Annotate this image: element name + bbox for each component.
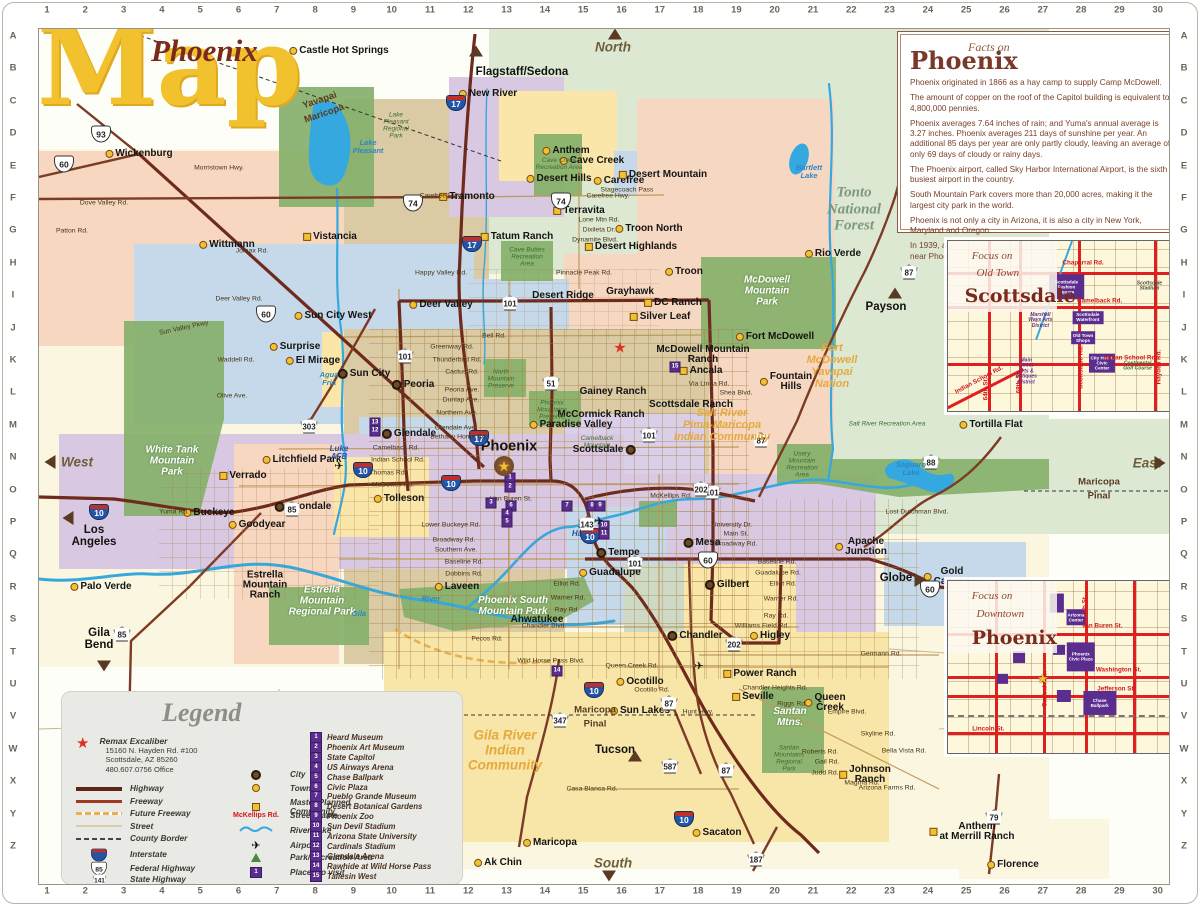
place-to-visit-marker: 9 xyxy=(595,501,606,512)
grid-col-label: 19 xyxy=(731,886,742,897)
city-label: Verrado xyxy=(219,471,266,481)
grid-col-label: 14 xyxy=(540,886,551,897)
grid-col-label: 13 xyxy=(501,5,512,16)
street-name-label: Thomas Rd. xyxy=(369,471,406,478)
town-dot-icon xyxy=(289,47,297,55)
city-label: Grayhawk xyxy=(606,287,654,297)
street-name-label: Chandler Blvd. xyxy=(522,624,567,631)
remax-name: Remax Excaliber xyxy=(99,736,197,746)
interstate-shield-icon: 17 xyxy=(446,95,466,111)
grid-row-label: K xyxy=(10,355,17,366)
city-label: Higley xyxy=(750,631,790,641)
grid-row-label: F xyxy=(10,193,16,204)
place-list-item: 15Taliesin West xyxy=(310,871,376,882)
grid-col-label: 3 xyxy=(121,886,126,897)
destination-arrow-icon xyxy=(63,511,74,525)
city-label: Goodyear xyxy=(229,520,286,530)
town-dot-icon xyxy=(579,569,587,577)
community-square-icon xyxy=(680,367,688,375)
legend-item-airport: ✈Airport xyxy=(230,839,317,852)
airport-icon: ✈ xyxy=(334,460,343,473)
street-name-label: Williams Field Rd. xyxy=(735,624,789,631)
street-name-label: Roberts Rd. xyxy=(802,750,838,757)
street-name-label: Hunt Hwy. xyxy=(683,710,714,717)
grid-row-label: R xyxy=(10,581,17,592)
inset-landmark-block xyxy=(1057,690,1071,702)
grid-col-label: 25 xyxy=(961,886,972,897)
street-name-label: Northern Ave. xyxy=(436,411,477,418)
inset-street-label: 64th St. xyxy=(982,378,989,401)
city-dot-icon xyxy=(338,369,348,379)
state-highway-shield-icon: 202 xyxy=(726,637,743,652)
area-label: Fort McDowell Yavapai Nation xyxy=(807,342,858,390)
grid-row-label: N xyxy=(10,452,17,463)
city-label: McCormick Ranch xyxy=(557,410,644,420)
street-name-label: McDowell Rd. xyxy=(372,483,414,490)
city-label: Surprise xyxy=(270,342,321,352)
place-to-visit-marker: 15 xyxy=(670,362,681,373)
grid-row-label: B xyxy=(10,63,17,74)
compass-label: North xyxy=(595,40,631,55)
grid-row-label: Z xyxy=(10,841,16,852)
city-label: Peoria xyxy=(392,380,435,390)
area-label: Lake Pleasant xyxy=(353,139,384,156)
street-name-label: Elliot Rd. xyxy=(769,582,796,589)
grid-row-label: W xyxy=(9,743,18,754)
town-dot-icon xyxy=(987,861,995,869)
street-name-label: Dunlap Ave. xyxy=(443,398,480,405)
grid-row-label: G xyxy=(9,225,16,236)
grid-col-label: 24 xyxy=(923,5,934,16)
grid-col-label: 12 xyxy=(463,886,474,897)
county-border-label: MaricopaPinal xyxy=(1078,476,1120,503)
city-label: Sun City xyxy=(338,369,391,379)
street-name-label: Chandler Heights Rd. xyxy=(743,686,808,693)
town-dot-icon xyxy=(199,241,207,249)
interstate-shield-icon: 10 xyxy=(584,682,604,698)
grid-col-label: 22 xyxy=(846,5,857,16)
grid-row-label: Q xyxy=(9,549,16,560)
grid-col-label: 6 xyxy=(236,886,241,897)
city-label: Glendale xyxy=(382,429,436,439)
facts-paragraph: The amount of copper on the roof of the … xyxy=(910,93,1170,114)
community-square-icon xyxy=(630,313,638,321)
town-dot-icon xyxy=(526,175,534,183)
phoenix-star-icon: ★ xyxy=(494,456,514,476)
city-label: Wickenburg xyxy=(105,149,172,159)
street-name-label: Baseline Rd. xyxy=(758,560,797,567)
city-dot-icon xyxy=(596,548,606,558)
city-dot-icon xyxy=(625,445,635,455)
area-label: Saguaro Lake xyxy=(896,461,926,478)
county-border-label: YavapaiMaricopa xyxy=(298,87,346,126)
grid-col-label: 17 xyxy=(655,886,666,897)
town-dot-icon xyxy=(736,333,744,341)
street-name-label: Dobbins Rd. xyxy=(445,572,482,579)
city-label: Paradise Valley xyxy=(530,420,613,430)
area-label: Bartlett Lake xyxy=(796,164,822,181)
street-name-label: Bethany Home Rd. xyxy=(430,435,487,442)
destination-arrow-icon xyxy=(97,661,111,672)
state-highway-shield-icon: 87 xyxy=(661,696,678,711)
grid-col-label: 9 xyxy=(351,5,356,16)
town-dot-icon xyxy=(70,583,78,591)
inset-street-label: Camelback Rd. xyxy=(1077,297,1122,304)
grid-col-label: 12 xyxy=(463,5,474,16)
town-dot-icon xyxy=(435,583,443,591)
county-swatch-icon xyxy=(76,838,122,840)
state-highway-shield-icon: 85 xyxy=(114,627,131,642)
grid-row-label: Z xyxy=(1181,841,1187,852)
city-label: Maricopa xyxy=(523,838,577,848)
town-dot-icon xyxy=(294,312,302,320)
destination-label: Gila Bend xyxy=(85,627,114,651)
street-name-label: Waddell Rd. xyxy=(218,358,255,365)
inset-landmark-block: Chase Ballpark xyxy=(1083,691,1116,715)
grid-col-label: 13 xyxy=(501,886,512,897)
area-label: Phoenix South Mountain Park xyxy=(478,595,548,617)
town-dot-icon xyxy=(374,495,382,503)
grid-col-label: 18 xyxy=(693,5,704,16)
inset-title: Phoenix xyxy=(972,629,1057,648)
grid-row-label: U xyxy=(10,679,17,690)
inset-script-line2: Downtown xyxy=(976,609,1024,620)
town-dot-icon xyxy=(616,678,624,686)
street-name-label: Skyline Rd. xyxy=(861,732,895,739)
compass-arrow-icon xyxy=(602,871,616,882)
inset-scottsdale-map: Focus on Old Town Scottsdale Chaparral R… xyxy=(948,241,1170,411)
street-name-label: Lone Mtn Rd. xyxy=(579,218,620,225)
city-label: Sun City West xyxy=(294,311,371,321)
legend-item-state: 141State Highway xyxy=(76,872,186,885)
area-label: North Mountain Preserve xyxy=(488,368,515,389)
city-label: Seville xyxy=(732,692,774,702)
town-dot-icon xyxy=(530,421,538,429)
grid-col-label: 29 xyxy=(1114,886,1125,897)
community-square-icon xyxy=(723,670,731,678)
facts-paragraph: Phoenix originated in 1866 as a hay camp… xyxy=(910,78,1170,88)
grid-row-label: S xyxy=(10,614,16,625)
city-label: Tatum Ranch xyxy=(481,232,554,242)
grid-row-label: B xyxy=(1181,63,1188,74)
city-label: Gainey Ranch xyxy=(580,387,647,397)
place-to-visit-marker: 14 xyxy=(552,666,563,677)
street-name-label: Patton Rd. xyxy=(56,229,88,236)
city-label: Chandler xyxy=(667,631,722,641)
place-to-visit-marker: 3 xyxy=(486,498,497,509)
grid-row-label: T xyxy=(10,646,16,657)
state-highway-shield-icon: 187 xyxy=(748,852,765,867)
map-sheet-frame: 1122334455667788991010111112121313141415… xyxy=(2,2,1198,904)
city-dot-icon xyxy=(683,538,693,548)
state-highway-shield-icon: 87 xyxy=(901,265,918,280)
street-swatch-icon xyxy=(76,825,122,827)
facts-paragraph: Phoenix averages 7.64 inches of rain; an… xyxy=(910,119,1170,160)
grid-row-label: Y xyxy=(10,808,16,819)
inset-street-label: Chaparral Rd. xyxy=(1062,260,1103,267)
facts-paragraphs: Phoenix originated in 1866 as a hay camp… xyxy=(910,78,1170,262)
grid-row-label: M xyxy=(9,419,17,430)
state-swatch-icon: 141 xyxy=(76,872,122,885)
city-label: Fountain Hills xyxy=(760,372,812,392)
city-label: Gilbert xyxy=(705,580,749,590)
city-label: Troon North xyxy=(615,224,682,234)
grid-row-label: E xyxy=(10,160,16,171)
grid-col-label: 25 xyxy=(961,5,972,16)
street-name-label: Elliot Rd. xyxy=(553,582,580,589)
community-square-icon xyxy=(839,771,847,779)
grid-row-label: C xyxy=(1181,95,1188,106)
legend-item-freeway: Freeway xyxy=(76,797,163,806)
street-name-label: Peoria Ave. xyxy=(445,388,480,395)
inset-landmark-block: Phoenix Civic Plaza xyxy=(1067,642,1095,671)
street-name-label: Ray Rd. xyxy=(555,608,580,615)
grid-col-label: 23 xyxy=(884,886,895,897)
legend-title: Legend xyxy=(162,698,241,728)
grid-row-label: S xyxy=(1181,614,1187,625)
grid-row-label: C xyxy=(10,95,17,106)
state-highway-shield-icon: 87 xyxy=(718,763,735,778)
inset-script-line1: Focus on xyxy=(972,251,1013,262)
legend-remax-entry: ★ Remax Excaliber 15160 N. Hayden Rd. #1… xyxy=(76,736,198,774)
street-name-label: Lower Buckeye Rd. xyxy=(422,523,481,530)
state-highway-shield-icon: 347 xyxy=(552,713,569,728)
interstate-shield-icon: 10 xyxy=(674,811,694,827)
street-name-label: Indian School Rd. xyxy=(371,458,425,465)
grid-row-label: V xyxy=(10,711,16,722)
street-name-label: Baseline Rd. xyxy=(445,560,484,567)
grid-col-label: 20 xyxy=(769,5,780,16)
grid-row-label: M xyxy=(1180,419,1188,430)
city-label: Estrella Mountain Ranch xyxy=(243,571,287,602)
street-name-label: Thunderbird Rd. xyxy=(432,358,481,365)
community-square-icon xyxy=(619,171,627,179)
town-dot-icon xyxy=(805,250,813,258)
area-label: Salt River Recreation Area xyxy=(849,420,926,427)
destination-arrow-icon xyxy=(628,751,642,762)
grid-row-label: F xyxy=(1181,193,1187,204)
state-highway-shield-icon: 202 xyxy=(693,482,710,497)
airport-swatch-icon: ✈ xyxy=(230,839,282,852)
city-label: El Mirage xyxy=(286,356,340,366)
street-name-label: Casa Blanca Rd. xyxy=(566,787,617,794)
area-label: Agua Fria xyxy=(320,371,339,388)
highway-swatch-icon xyxy=(76,787,122,791)
state-highway-shield-icon: 101 xyxy=(641,428,658,443)
inset-script-line2: Old Town xyxy=(976,268,1019,279)
mpc-swatch-icon xyxy=(230,803,282,811)
street-name-label: Broadway Rd. xyxy=(433,538,476,545)
grid-row-label: J xyxy=(10,322,15,333)
area-label: Gila xyxy=(352,610,366,618)
grid-row-label: X xyxy=(1181,776,1187,787)
street-name-label: Deer Valley Rd. xyxy=(215,297,262,304)
grid-col-label: 2 xyxy=(83,5,88,16)
town-dot-icon xyxy=(594,177,602,185)
city-label: Castle Hot Springs xyxy=(289,46,388,56)
street-name-label: Ray Rd. xyxy=(764,614,789,621)
street-name-label: Glendale Ave. xyxy=(435,426,477,433)
city-label: Avondale xyxy=(275,502,332,512)
town-dot-icon xyxy=(959,421,967,429)
grid-row-label: Q xyxy=(1180,549,1187,560)
grid-row-label: J xyxy=(1181,322,1186,333)
inset-street-label: 7th St. xyxy=(1082,595,1089,614)
city-dot-icon xyxy=(275,502,285,512)
legend-item-highway: Highway xyxy=(76,784,164,793)
streetname-swatch-icon: McKellips Rd. xyxy=(230,812,282,819)
freeway-swatch-icon xyxy=(76,800,122,803)
state-highway-shield-icon: 587 xyxy=(662,759,679,774)
town-dot-icon xyxy=(229,521,237,529)
grid-col-label: 1 xyxy=(44,886,49,897)
grid-row-label: P xyxy=(1181,517,1187,528)
state-highway-shield-icon: 143 xyxy=(579,517,596,532)
street-name-label: Gail Rd. xyxy=(815,760,840,767)
grid-row-label: R xyxy=(1181,581,1188,592)
city-label: Troon xyxy=(665,267,703,277)
destination-label: Globe xyxy=(880,572,913,584)
community-square-icon xyxy=(732,693,740,701)
city-label: Fort McDowell xyxy=(736,332,814,342)
grid-col-label: 10 xyxy=(386,5,397,16)
grid-row-label: W xyxy=(1180,743,1189,754)
grid-row-label: A xyxy=(10,31,17,42)
grid-col-label: 27 xyxy=(1038,5,1049,16)
town-dot-icon xyxy=(760,378,768,386)
facts-on-phoenix-box: Facts on Phoenix Phoenix originated in 1… xyxy=(897,31,1170,233)
area-label: River xyxy=(422,595,441,603)
city-label: Phoenix xyxy=(481,440,537,455)
grid-col-label: 8 xyxy=(312,886,317,897)
street-name-label: Germann Rd. xyxy=(861,652,902,659)
street-name-label: Broadway Rd. xyxy=(715,542,758,549)
inset-street-label: Lincoln St. xyxy=(972,725,1004,732)
area-label: Usery Mountain Recreation Area xyxy=(786,451,817,480)
grid-col-label: 22 xyxy=(846,886,857,897)
interstate-shield-icon: 10 xyxy=(89,504,109,520)
city-label: Vistancia xyxy=(303,232,357,242)
grid-col-label: 5 xyxy=(198,5,203,16)
phoenix-map-sheet: { "title": {"script": "Phoenix", "main":… xyxy=(0,0,1200,906)
legend-item-street: Street xyxy=(76,822,153,831)
grid-col-label: 24 xyxy=(923,886,934,897)
grid-col-label: 26 xyxy=(999,886,1010,897)
city-label: Rio Verde xyxy=(805,249,861,259)
town-dot-icon xyxy=(542,147,550,155)
town-dot-icon xyxy=(615,225,623,233)
grid-col-label: 20 xyxy=(769,886,780,897)
us-highway-shield-icon: 60 xyxy=(54,156,74,173)
street-name-label: Dynamite Blvd. xyxy=(572,238,618,245)
street-name-label: Bella Vista Rd. xyxy=(882,749,926,756)
town-dot-icon xyxy=(270,343,278,351)
city-label: Desert Hills xyxy=(526,174,591,184)
grid-row-label: A xyxy=(1181,31,1188,42)
street-name-label: Dixileta Dr. xyxy=(583,228,616,235)
street-name-label: Camelback Rd. xyxy=(373,446,419,453)
city-label: Sacaton xyxy=(693,828,742,838)
city-label: Sun Lakes xyxy=(610,706,670,716)
grid-col-label: 30 xyxy=(1152,5,1163,16)
inset-street-label: Van Buren St. xyxy=(1082,622,1123,629)
town-dot-icon xyxy=(835,543,843,551)
grid-row-label: O xyxy=(9,484,16,495)
grid-col-label: 10 xyxy=(386,886,397,897)
city-label: Tortilla Flat xyxy=(959,420,1022,430)
city-label: Tolleson xyxy=(374,494,424,504)
inset-street-label: Hayden Rd. xyxy=(1155,349,1162,384)
grid-col-label: 30 xyxy=(1152,886,1163,897)
us-highway-shield-icon: 60 xyxy=(698,552,718,569)
grid-col-label: 21 xyxy=(808,5,819,16)
grid-col-label: 28 xyxy=(1076,886,1087,897)
area-label: Tonto National Forest xyxy=(827,184,881,234)
river-swatch-icon xyxy=(230,825,282,835)
remax-star-icon: ★ xyxy=(76,736,89,751)
airport-icon: ✈ xyxy=(594,515,603,528)
legend-item-county: County Border xyxy=(76,834,187,843)
grid-row-label: D xyxy=(10,128,17,139)
area-label: Santan Mountains Regional Park xyxy=(774,745,804,774)
street-name-label: Greenway Rd. xyxy=(430,345,473,352)
city-label: Desert Mountain xyxy=(619,170,707,180)
city-label: Ancala xyxy=(680,366,723,376)
community-square-icon xyxy=(929,828,937,836)
street-name-label: Queen Creek Rd. xyxy=(606,664,659,671)
grid-col-label: 4 xyxy=(159,5,164,16)
grid-col-label: 2 xyxy=(83,886,88,897)
remax-location-star-icon: ★ xyxy=(613,341,626,356)
community-square-icon xyxy=(644,299,652,307)
city-label: Silver Leaf xyxy=(630,312,691,322)
inset-landmark-block: Scottsdale Waterfront xyxy=(1072,311,1103,325)
town-dot-icon xyxy=(665,268,673,276)
street-name-label: Main St. xyxy=(724,532,749,539)
compass-arrow-icon xyxy=(1155,456,1166,470)
grid-row-label: H xyxy=(1181,257,1188,268)
area-label: Cave Buttes Recreation Area xyxy=(509,246,544,267)
place-to-visit-marker: 7 xyxy=(562,501,573,512)
grid-row-label: E xyxy=(1181,160,1187,171)
city-label: Anthem at Merrill Ranch xyxy=(929,822,1014,842)
destination-label: Flagstaff/Sedona xyxy=(476,66,569,78)
city-label: New River xyxy=(459,89,517,99)
area-label: McDowell Mountain Park xyxy=(744,275,790,308)
legend-item-future: Future Freeway xyxy=(76,809,191,818)
street-name-label: Empire Blvd. xyxy=(828,710,867,717)
compass-label: West xyxy=(61,455,93,470)
grid-row-label: I xyxy=(12,290,15,301)
street-name-label: Arizona Farms Rd. xyxy=(859,786,916,793)
map-canvas: WickenburgCastle Hot SpringsNew RiverAnt… xyxy=(38,28,1170,885)
street-name-label: McKellips Rd. xyxy=(650,494,692,501)
legend-item-city: City xyxy=(230,770,305,780)
area-label: Gila River Indian Community xyxy=(468,729,542,774)
grid-col-label: 5 xyxy=(198,886,203,897)
grid-col-label: 15 xyxy=(578,5,589,16)
city-label: DC Ranch xyxy=(644,298,702,308)
grid-col-label: 15 xyxy=(578,886,589,897)
state-highway-shield-icon: 101 xyxy=(502,296,519,311)
city-dot-icon xyxy=(392,380,402,390)
destination-label: Payson xyxy=(866,301,907,313)
inset-script-line1: Focus on xyxy=(972,591,1013,602)
grid-col-label: 19 xyxy=(731,5,742,16)
grid-row-label: G xyxy=(1180,225,1187,236)
downtown-star-icon: ★ xyxy=(1037,671,1049,687)
place-to-visit-marker: 2 xyxy=(505,482,516,493)
